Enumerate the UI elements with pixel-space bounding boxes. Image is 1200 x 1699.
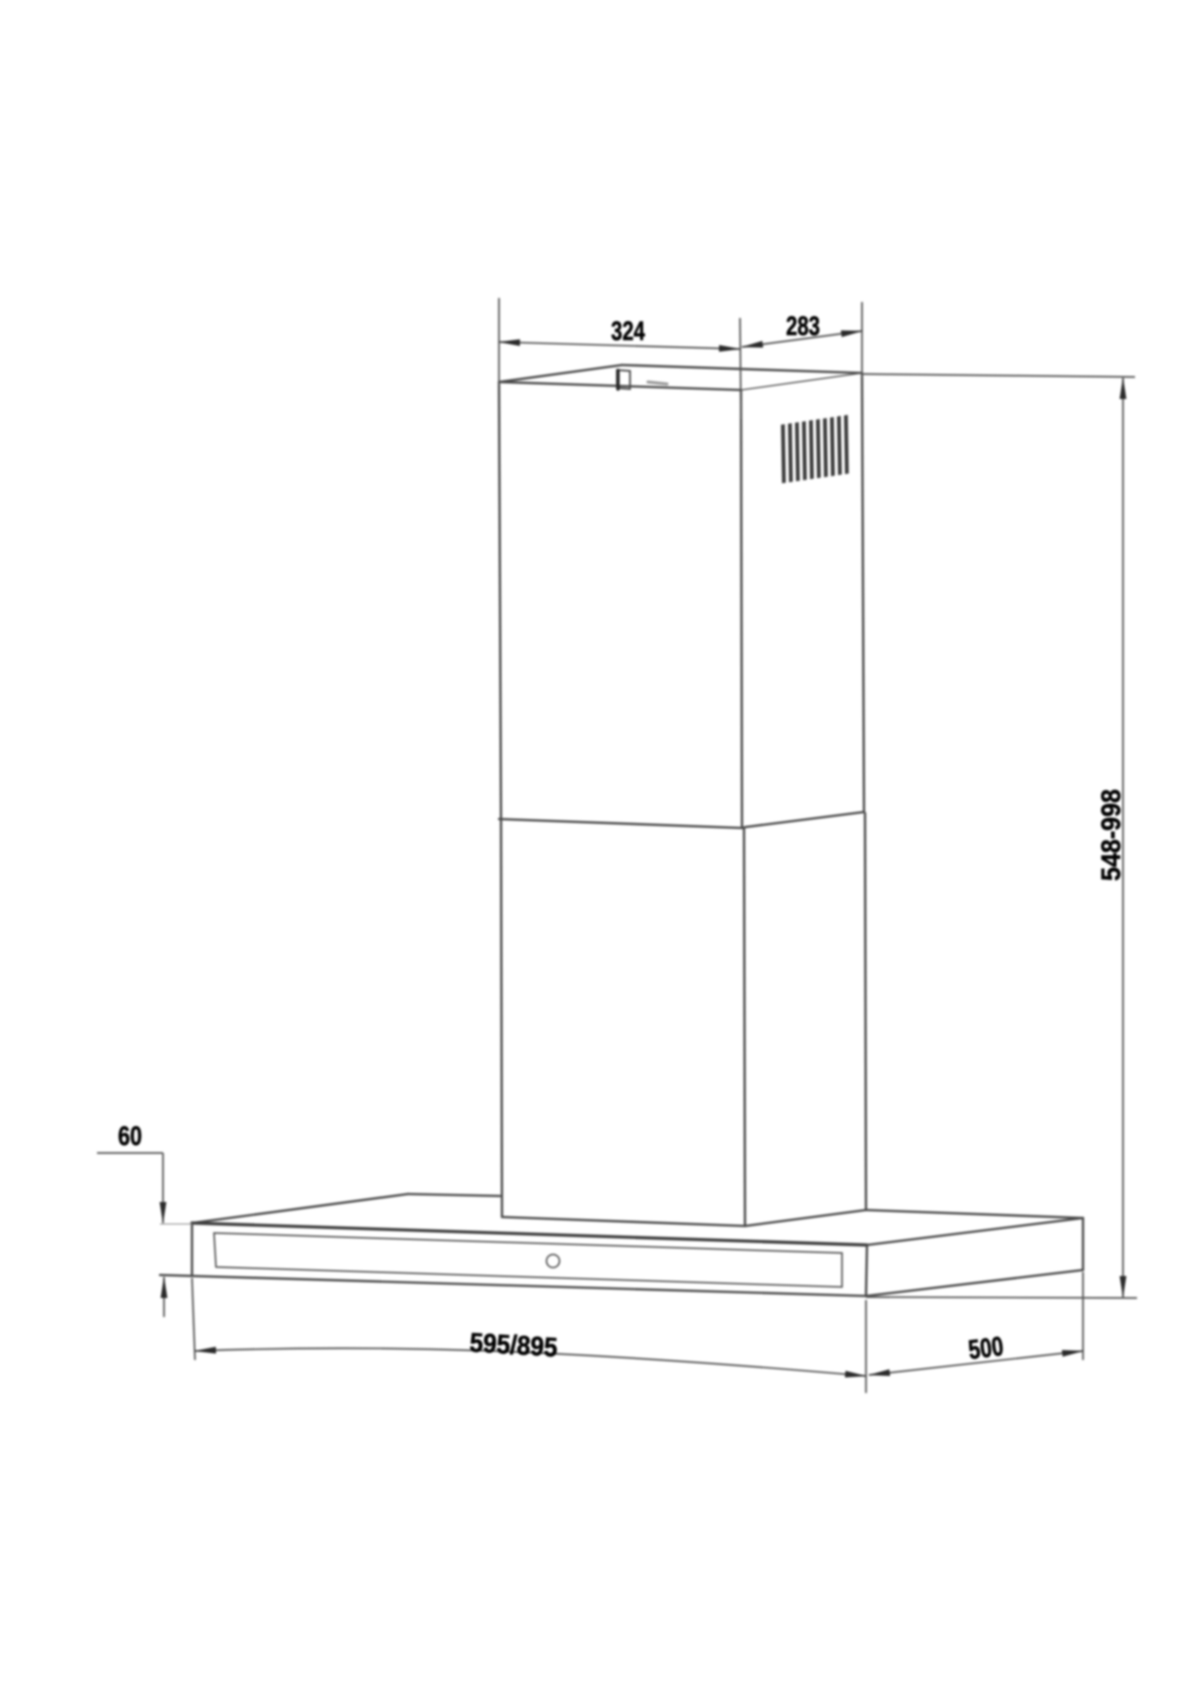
svg-text:60: 60 [118, 1121, 142, 1151]
svg-text:548-998: 548-998 [1096, 789, 1126, 881]
svg-text:500: 500 [967, 1331, 1005, 1365]
svg-text:595/895: 595/895 [469, 1327, 559, 1362]
svg-text:283: 283 [786, 311, 820, 341]
svg-text:324: 324 [611, 316, 645, 346]
